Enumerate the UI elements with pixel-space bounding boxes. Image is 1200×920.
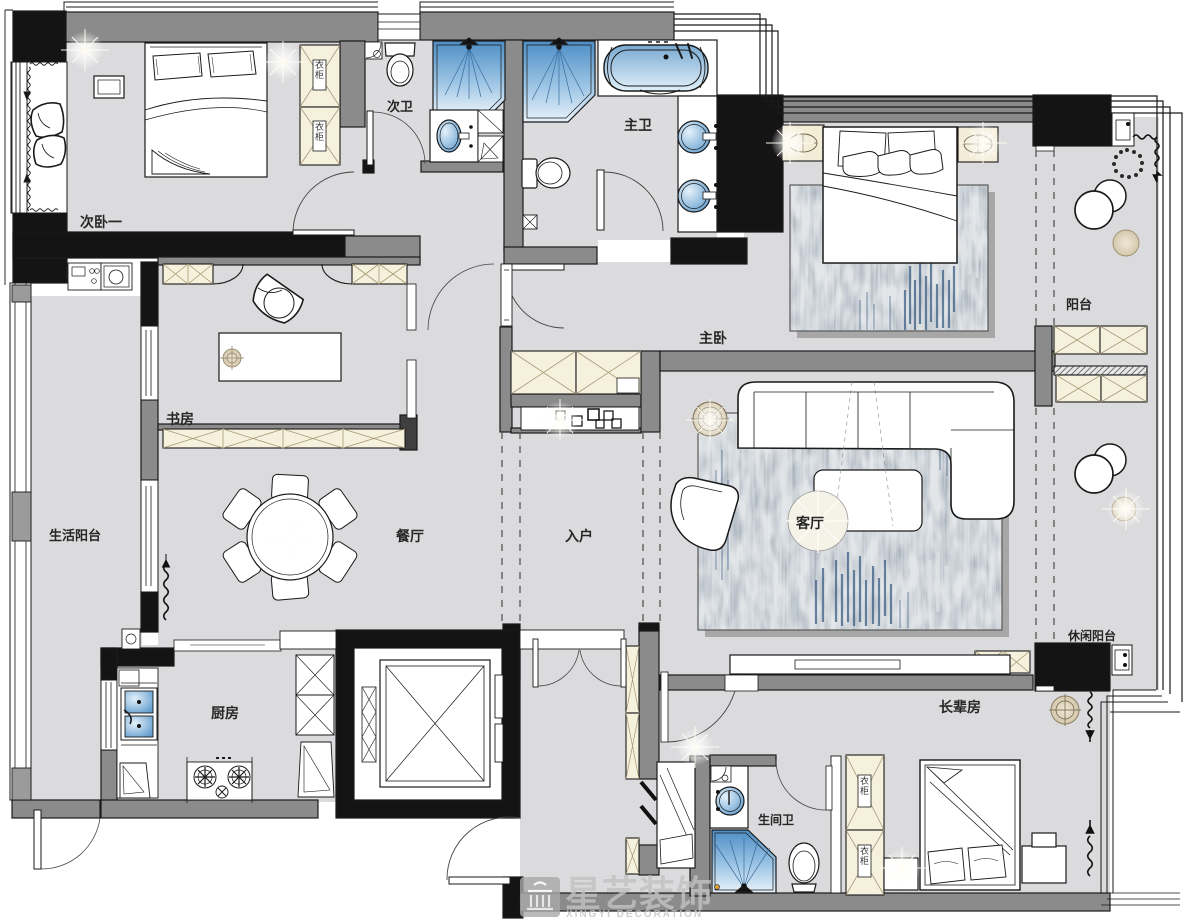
svg-text:次卧一: 次卧一 — [80, 214, 122, 230]
svg-text:餐厅: 餐厅 — [395, 528, 424, 544]
svg-text:衣柜: 衣柜 — [860, 775, 869, 796]
svg-text:书房: 书房 — [166, 411, 194, 427]
svg-text:生活阳台: 生活阳台 — [49, 528, 101, 543]
svg-text:XINGYI DECORATION: XINGYI DECORATION — [566, 909, 703, 920]
svg-text:衣柜: 衣柜 — [315, 121, 324, 142]
svg-text:客厅: 客厅 — [795, 515, 824, 531]
svg-text:厨房: 厨房 — [211, 705, 239, 721]
svg-text:衣柜: 衣柜 — [860, 845, 869, 866]
svg-text:生间卫: 生间卫 — [758, 812, 794, 827]
svg-text:衣柜: 衣柜 — [315, 59, 324, 80]
svg-text:休闲阳台: 休闲阳台 — [1067, 628, 1116, 643]
svg-text:主卧: 主卧 — [699, 330, 727, 346]
svg-text:主卫: 主卫 — [624, 117, 652, 133]
svg-text:长辈房: 长辈房 — [939, 699, 981, 715]
svg-text:次卫: 次卫 — [387, 99, 413, 114]
svg-text:阳台: 阳台 — [1066, 297, 1092, 312]
svg-text:星艺装饰: 星艺装饰 — [565, 873, 713, 914]
svg-text:入户: 入户 — [565, 528, 593, 544]
